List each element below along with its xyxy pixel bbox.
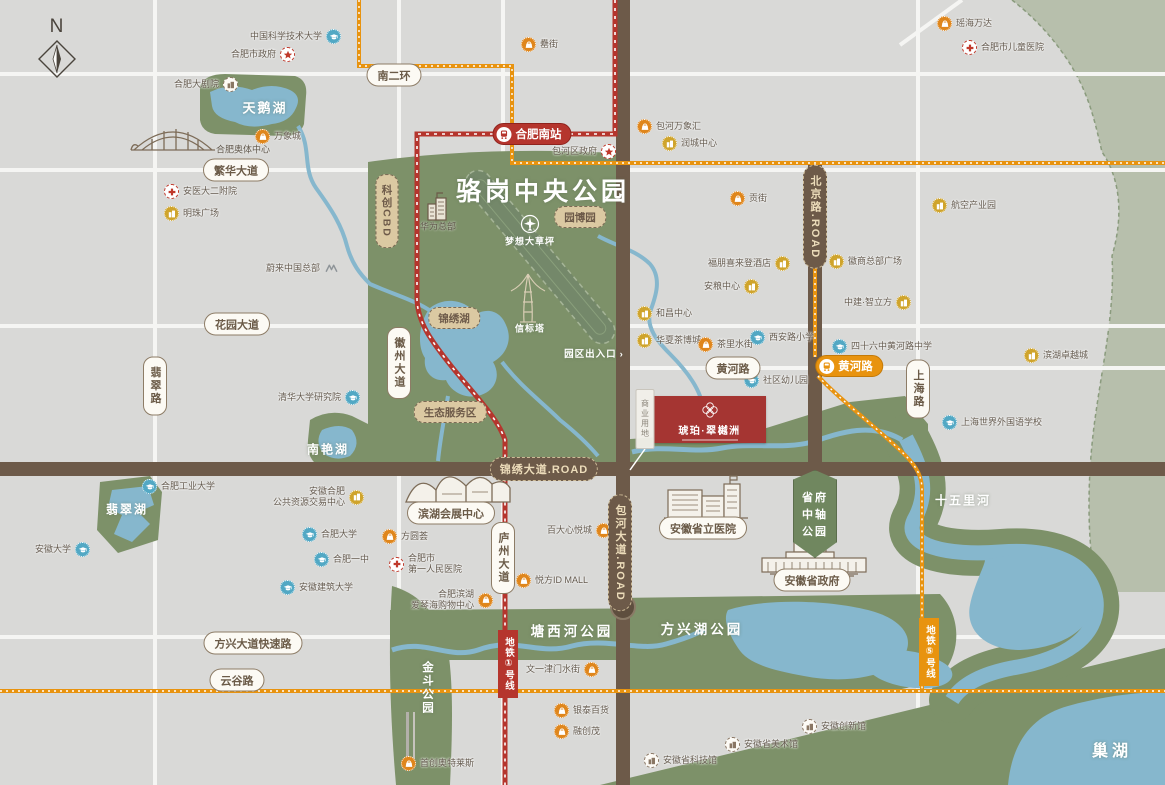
poi-label: 安徽建筑大学	[299, 582, 353, 593]
poi-label: 融创茂	[573, 726, 600, 737]
poi-hefei-no1-school: 合肥一中	[314, 552, 369, 567]
poi-label: 滨湖卓越城	[1043, 350, 1088, 361]
nio-logo-icon	[324, 261, 339, 276]
school-icon	[750, 330, 765, 345]
poi-zhongjian-cube: 中建·智立方	[844, 295, 911, 310]
chevron-right-icon: ›	[620, 349, 624, 360]
shopping-icon	[937, 16, 952, 31]
poi-label: 合肥工业大学	[161, 481, 215, 492]
metro-line-badge-metro-line-1: 地铁①号线	[498, 630, 518, 698]
poi-label: 徽商总部广场	[848, 256, 902, 267]
poi-label: 罍街	[540, 39, 558, 50]
location-map: N 琥珀·翠樾洲 省府 中轴 公园 中国科学技术大学合肥市政府罍街瑶海万达合肥市…	[0, 0, 1165, 785]
poi-fangyuanhui: 方圆荟	[382, 529, 428, 544]
area-label-huawei-hq: 华为总部	[420, 220, 456, 233]
hospital-cross-icon	[962, 40, 977, 55]
poi-label: 安徽创新馆	[821, 721, 866, 732]
poi-label: 上海世界外国语学校	[961, 417, 1042, 428]
area-label-swan-lake: 天鹅湖	[242, 98, 287, 117]
poi-label: 明珠广场	[183, 208, 219, 219]
poi-label: 合肥大剧院	[174, 79, 219, 90]
office-building-icon	[349, 490, 364, 505]
shopping-icon	[584, 662, 599, 677]
project-emblem-icon	[699, 399, 721, 421]
road-badge-fanhua-avenue: 繁华大道	[203, 159, 269, 182]
poi-aviation-industry-park: 航空产业园	[932, 198, 996, 213]
poi-label: 茶里水街	[717, 339, 753, 350]
poi-binhu-excellence-city: 滨湖卓越城	[1024, 348, 1088, 363]
poi-label: 安徽合肥公共资源交易中心	[273, 486, 345, 509]
road-badge-huanghe-road: 黄河路	[706, 357, 761, 380]
poi-label-line: 合肥市	[408, 553, 462, 564]
poi-runcheng-center: 润城中心	[662, 136, 717, 151]
poi-label: 安徽省美术馆	[744, 739, 798, 750]
shield-line: 中轴	[802, 506, 828, 522]
poi-label: 合肥滨湖爱琴海购物中心	[411, 589, 474, 612]
road-badge-yungu-road: 云谷路	[210, 669, 265, 692]
area-label-luogang-park-title: 骆岗中央公园	[456, 172, 630, 208]
shopping-icon	[478, 593, 493, 608]
poi-label: 万象城	[274, 131, 301, 142]
road-badge-huayuan-avenue: 花园大道	[204, 313, 270, 336]
project-name: 琥珀·翠樾洲	[678, 422, 740, 437]
station-label: 黄河路	[838, 358, 873, 374]
poi-hefei-city-gov: 合肥市政府	[231, 47, 295, 62]
road-badge-provincial-government: 安徽省政府	[774, 569, 851, 592]
poi-public-resource-center: 安徽合肥公共资源交易中心	[273, 486, 364, 509]
museum-icon	[644, 753, 659, 768]
poi-label: 合肥大学	[321, 529, 357, 540]
area-label-feicui-lake: 翡翠湖	[106, 501, 148, 518]
poi-label: 安徽大学	[35, 544, 71, 555]
office-building-icon	[662, 136, 677, 151]
office-building-icon	[829, 254, 844, 269]
poi-label: 社区幼儿园	[763, 375, 808, 386]
hospital-cross-icon	[389, 557, 404, 572]
shengfu-axis-park-shield: 省府 中轴 公园	[793, 470, 837, 558]
poi-no46-huanghe-school: 四十六中黄河路中学	[832, 339, 932, 354]
area-label-beacon-tower: 信标塔	[515, 322, 545, 335]
area-label-shiwuli-river: 十五里河	[935, 492, 991, 509]
poi-label: 蔚来中国总部	[266, 263, 320, 274]
road-badge-fangxing-expressway: 方兴大道快速路	[204, 632, 303, 655]
office-building-icon	[637, 333, 652, 348]
poi-label: 首创奥特莱斯	[420, 758, 474, 769]
poi-sunac-mall: 融创茂	[554, 724, 600, 739]
poi-mixc-mall: 万象城	[255, 129, 301, 144]
poi-label: 华夏茶博城	[656, 335, 701, 346]
office-building-icon	[896, 295, 911, 310]
school-icon	[314, 552, 329, 567]
office-building-icon	[744, 279, 759, 294]
shield-line: 公园	[802, 523, 828, 539]
poi-hfut: 合肥工业大学	[142, 479, 215, 494]
road-badge-commercial-land: 商业用地	[636, 389, 655, 449]
poi-label: 合肥市儿童医院	[981, 42, 1044, 53]
poi-label-line: 爱琴海购物中心	[411, 600, 474, 611]
poi-label: 合肥市政府	[231, 49, 276, 60]
poi-label: 包河区政府	[552, 146, 597, 157]
poi-wenyi-water-street: 文一津门水街	[526, 662, 599, 677]
poi-label-line: 安徽合肥	[273, 486, 345, 497]
project-tagline-bar	[682, 439, 738, 441]
poi-grand-theatre: 合肥大剧院	[174, 77, 238, 92]
office-building-icon	[1024, 348, 1039, 363]
area-label-chao-lake: 巢湖	[1092, 737, 1132, 761]
poi-gongjie-street: 贡街	[730, 191, 767, 206]
provincial-hospital-illustration	[664, 474, 748, 522]
shopping-icon	[554, 703, 569, 718]
poi-label: 百大心悦城	[547, 525, 592, 536]
area-label-olympic-center: 合肥奥体中心	[216, 143, 270, 156]
poi-label: 合肥一中	[333, 554, 369, 565]
poi-label: 和昌中心	[656, 308, 692, 319]
poi-hechang-center: 和昌中心	[637, 306, 692, 321]
poi-anliang-center: 安粮中心	[704, 279, 759, 294]
poi-label: 四十六中黄河路中学	[851, 341, 932, 352]
shopping-icon	[698, 337, 713, 352]
poi-label: 方圆荟	[401, 531, 428, 542]
area-label-park-entrance: 园区出入口›	[564, 346, 624, 360]
poi-label: 包河万象汇	[656, 121, 701, 132]
road-badge-provincial-hospital: 安徽省立医院	[659, 517, 747, 540]
shield-line: 省府	[802, 489, 828, 505]
road-badge-baohe-avenue: 包河大道.ROAD	[608, 494, 632, 611]
road-badge-huizhou-avenue: 徽州大道	[387, 327, 411, 399]
road-badge-south-2nd-ring: 南二环	[367, 64, 422, 87]
poi-ba: 包河万象汇	[637, 119, 701, 134]
area-label-jindou-park: 金斗公园	[419, 661, 435, 715]
metro-icon	[497, 127, 512, 142]
government-star-icon	[280, 47, 295, 62]
poi-label: 瑶海万达	[956, 18, 992, 29]
poi-label: 贡街	[749, 193, 767, 204]
metro-station-hefei-south-station: 合肥南站	[493, 123, 572, 145]
office-building-icon	[775, 256, 790, 271]
poi-shouchuang-outlets: 首创奥特莱斯	[401, 756, 474, 771]
poi-ustc: 中国科学技术大学	[250, 29, 341, 44]
poi-first-peoples-hospital: 合肥市第一人民医院	[389, 553, 462, 576]
school-icon	[832, 339, 847, 354]
shopping-icon	[516, 573, 531, 588]
poi-four-points-hotel: 福朋喜来登酒店	[708, 256, 790, 271]
poi-anhui-sci-tech-museum: 安徽省科技馆	[644, 753, 717, 768]
poi-label-line: 合肥滨湖	[411, 589, 474, 600]
poi-anyi-2nd-hospital: 安医大二附院	[164, 184, 237, 199]
poi-huaxia-tea-expo-city: 华夏茶博城	[637, 333, 701, 348]
poi-aegean-mall: 合肥滨湖爱琴海购物中心	[411, 589, 493, 612]
poi-label: 银泰百货	[573, 705, 609, 716]
poi-nio-china-hq: 蔚来中国总部	[266, 261, 339, 276]
poi-label: 合肥市第一人民医院	[408, 553, 462, 576]
station-label: 合肥南站	[516, 126, 562, 142]
road-badge-exhibition-center: 滨湖会展中心	[407, 502, 495, 525]
school-icon	[302, 527, 317, 542]
school-icon	[326, 29, 341, 44]
poi-baida-xinyue-mall: 百大心悦城	[547, 523, 611, 538]
museum-icon	[223, 77, 238, 92]
poi-label: 悦方ID MALL	[535, 575, 588, 586]
poi-huishang-hq-plaza: 徽商总部广场	[829, 254, 902, 269]
office-building-icon	[637, 306, 652, 321]
shopping-icon	[401, 756, 416, 771]
shopping-icon	[521, 37, 536, 52]
school-icon	[942, 415, 957, 430]
metro-line-badge-metro-line-5: 地铁⑤号线	[919, 618, 939, 686]
compass: N	[36, 16, 78, 80]
poi-label: 安医大二附院	[183, 186, 237, 197]
project-marker: 琥珀·翠樾洲	[653, 396, 766, 443]
poi-children-hospital: 合肥市儿童医院	[962, 40, 1044, 55]
compass-needle-icon	[36, 38, 78, 80]
road-badge-kechuang-cbd: 科创CBD	[376, 174, 399, 248]
compass-north-label: N	[50, 16, 65, 38]
office-building-icon	[932, 198, 947, 213]
poi-label: 西安路小学	[769, 332, 814, 343]
poi-leijie-street: 罍街	[521, 37, 558, 52]
government-star-icon	[601, 144, 616, 159]
poi-shanghai-foreign-school: 上海世界外国语学校	[942, 415, 1042, 430]
olympic-stadium-illustration	[128, 112, 218, 158]
poi-label: 文一津门水街	[526, 664, 580, 675]
poi-label-line: 第一人民医院	[408, 564, 462, 575]
school-icon	[142, 479, 157, 494]
dream-lawn-plane-icon	[520, 214, 540, 234]
road-badge-feicui-road: 翡翠路	[143, 357, 167, 416]
poi-label: 中国科学技术大学	[250, 31, 322, 42]
poi-anhui-innovation-hall: 安徽创新馆	[802, 719, 866, 734]
poi-label-line: 公共资源交易中心	[273, 497, 345, 508]
baohe-avenue-road	[616, 0, 630, 785]
road-badge-yuanboyuan: 园博园	[554, 206, 606, 228]
poi-hefei-university: 合肥大学	[302, 527, 357, 542]
museum-icon	[725, 737, 740, 752]
area-label-nanyan-lake: 南艳湖	[307, 441, 349, 458]
poi-baohe-district-gov: 包河区政府	[552, 144, 616, 159]
school-icon	[280, 580, 295, 595]
museum-icon	[802, 719, 817, 734]
poi-anhui-jianzhu-university: 安徽建筑大学	[280, 580, 353, 595]
shopping-icon	[637, 119, 652, 134]
poi-yintai-department: 银泰百货	[554, 703, 609, 718]
road-badge-jinxiu-lake: 锦绣湖	[428, 307, 480, 329]
poi-label: 润城中心	[681, 138, 717, 149]
poi-mingzhu-plaza: 明珠广场	[164, 206, 219, 221]
road-badge-shanghai-road: 上海路	[906, 360, 930, 419]
road-badge-jinxiu-avenue: 锦绣大道.ROAD	[490, 457, 598, 481]
area-label-tangxihe-park: 塘西河公园	[531, 620, 614, 640]
shopping-icon	[554, 724, 569, 739]
poi-yuefang-id-mall: 悦方ID MALL	[516, 573, 588, 588]
poi-anhui-art-museum: 安徽省美术馆	[725, 737, 798, 752]
area-label-fangxinghu-park: 方兴湖公园	[661, 618, 744, 638]
area-label-dream-lawn: 梦想大草坪	[505, 235, 555, 248]
poi-xianlu-primary-school: 西安路小学	[750, 330, 814, 345]
road-badge-luzhou-avenue: 庐州大道	[491, 522, 515, 594]
poi-chali-water-street: 茶里水街	[698, 337, 753, 352]
hospital-cross-icon	[164, 184, 179, 199]
poi-label: 清华大学研究院	[278, 392, 341, 403]
beacon-tower-illustration	[508, 270, 548, 326]
poi-anhui-university: 安徽大学	[35, 542, 90, 557]
school-icon	[345, 390, 360, 405]
shopping-icon	[255, 129, 270, 144]
road-badge-eco-service-area: 生态服务区	[414, 401, 487, 423]
office-building-icon	[164, 206, 179, 221]
poi-label: 安徽省科技馆	[663, 755, 717, 766]
shopping-icon	[730, 191, 745, 206]
poi-label: 航空产业园	[951, 200, 996, 211]
metro-station-huanghe-road-station: 黄河路	[815, 355, 883, 377]
scale-marker	[404, 712, 418, 760]
poi-label: 中建·智立方	[844, 297, 892, 308]
school-icon	[75, 542, 90, 557]
poi-yaohai-wanda: 瑶海万达	[937, 16, 992, 31]
poi-label: 福朋喜来登酒店	[708, 258, 771, 269]
poi-label: 安粮中心	[704, 281, 740, 292]
road-badge-beijing-road: 北京路.ROAD	[803, 165, 827, 269]
poi-tsinghua-institute: 清华大学研究院	[278, 390, 360, 405]
metro-icon	[819, 359, 834, 374]
shopping-icon	[382, 529, 397, 544]
